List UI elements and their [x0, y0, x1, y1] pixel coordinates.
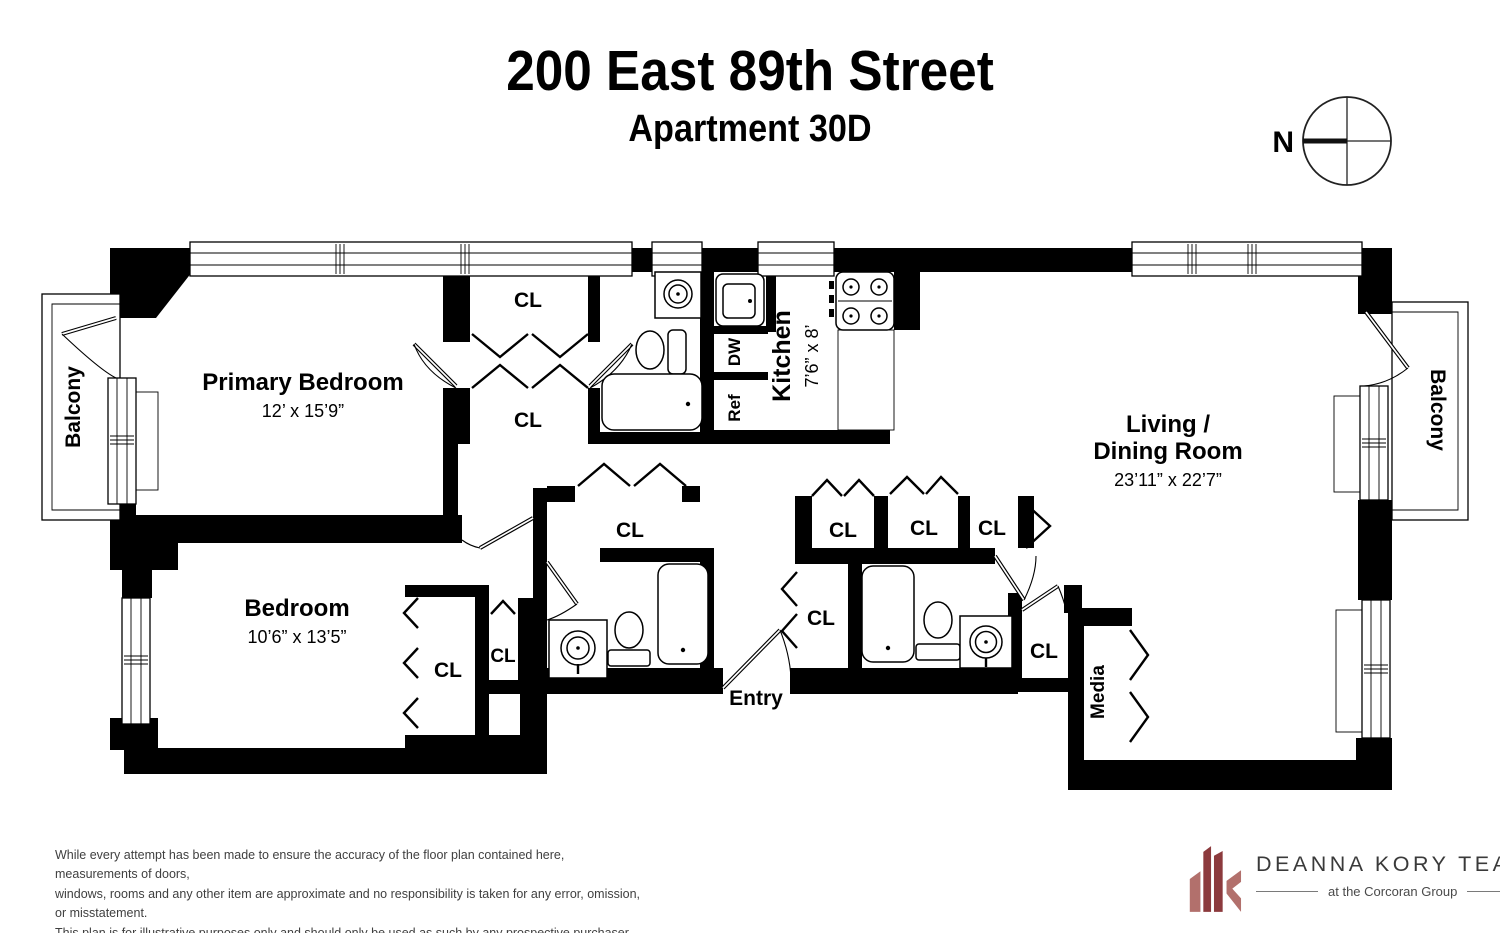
door-bath-left	[547, 562, 577, 620]
closet-label-media: CL	[1030, 640, 1058, 663]
brokerage-logo: DEANNA KORY TEAM at the Corcoran Group	[1184, 840, 1500, 918]
bathtub-top	[602, 374, 702, 430]
living-dining-dims: 23’11” x 22’7”	[1114, 470, 1222, 490]
bathtub-left	[658, 564, 708, 664]
window-sill	[1336, 610, 1362, 732]
door-primary-bedroom	[414, 344, 456, 388]
disclaimer-line-3: This plan is for illustrative purposes o…	[55, 924, 640, 933]
closet-label-c: CL	[978, 517, 1006, 540]
logo-team-name: DEANNA KORY TEAM	[1256, 852, 1500, 877]
logo-rule-right	[1467, 891, 1500, 892]
closet-label-hall-top: CL	[514, 289, 542, 312]
living-dining-label-2: Dining Room	[1093, 438, 1242, 465]
sink-bath-right	[960, 616, 1012, 668]
window-bedroom-west	[122, 598, 150, 724]
window-primary-west	[108, 378, 158, 504]
compass-rose: N	[1272, 97, 1391, 185]
logo-text-block: DEANNA KORY TEAM at the Corcoran Group	[1256, 840, 1500, 899]
compass-north-label: N	[1272, 126, 1294, 159]
refrigerator-label: Ref	[725, 394, 744, 422]
logo-tagline-row: at the Corcoran Group	[1256, 884, 1500, 899]
stove	[829, 272, 894, 330]
kitchen-label: Kitchen	[768, 310, 796, 402]
closet-label-bedroom-small: CL	[490, 646, 516, 667]
window-top-bath	[652, 242, 702, 276]
logo-tagline: at the Corcoran Group	[1328, 884, 1457, 899]
living-dining-label-1: Living /	[1126, 411, 1210, 438]
window-living-balcony	[1334, 386, 1388, 500]
kitchen-counter	[838, 330, 894, 430]
toilet-bath-right	[916, 602, 960, 660]
closet-label-bath-left: CL	[616, 519, 644, 542]
kitchen-dims: 7’6” x 8’	[802, 324, 822, 387]
closet-label-a: CL	[829, 519, 857, 542]
bedroom-label: Bedroom	[244, 595, 349, 622]
toilet-bath-left	[608, 612, 650, 666]
logo-rule-left	[1256, 891, 1318, 892]
floorplan-page: 200 East 89th Street Apartment 30D N	[0, 0, 1500, 933]
bedroom-dims: 10’6” x 13’5”	[247, 627, 346, 647]
window-sill	[1334, 396, 1360, 492]
primary-bedroom-dims: 12’ x 15’9”	[262, 401, 344, 421]
entry-label: Entry	[729, 687, 783, 710]
dk-logo-icon	[1184, 840, 1242, 918]
bathtub-right	[862, 566, 914, 662]
closet-label-bedroom-tall: CL	[434, 659, 462, 682]
floorplan-drawing: N	[0, 0, 1500, 933]
window-top-living	[1132, 242, 1362, 276]
toilet-bath-top	[636, 330, 686, 374]
kitchen-sink	[716, 274, 764, 326]
window-top-primary	[190, 242, 632, 276]
media-label: Media	[1088, 665, 1109, 719]
room-labels: Primary Bedroom 12’ x 15’9” Bedroom 10’6…	[202, 289, 1242, 719]
disclaimer-line-1: While every attempt has been made to ens…	[55, 846, 640, 885]
closet-label-entry: CL	[807, 607, 835, 630]
primary-bedroom-label: Primary Bedroom	[202, 369, 403, 396]
window-sill	[136, 392, 158, 490]
dishwasher-label: DW	[725, 337, 744, 366]
door-entry	[723, 630, 791, 688]
closet-label-b: CL	[910, 517, 938, 540]
sink-bath-left	[549, 620, 607, 678]
sink-bath-top	[655, 272, 701, 318]
disclaimer-line-2: windows, rooms and any other item are ap…	[55, 885, 640, 924]
disclaimer-text: While every attempt has been made to ens…	[55, 846, 640, 933]
door-bedroom	[462, 518, 533, 548]
balcony-right-label: Balcony	[1426, 369, 1449, 451]
balcony-right: Balcony	[1392, 302, 1468, 520]
window-top-kitchen	[758, 242, 834, 276]
closet-label-hall-bottom: CL	[514, 409, 542, 432]
balcony-left-label: Balcony	[62, 366, 85, 448]
window-living-east	[1336, 600, 1390, 738]
